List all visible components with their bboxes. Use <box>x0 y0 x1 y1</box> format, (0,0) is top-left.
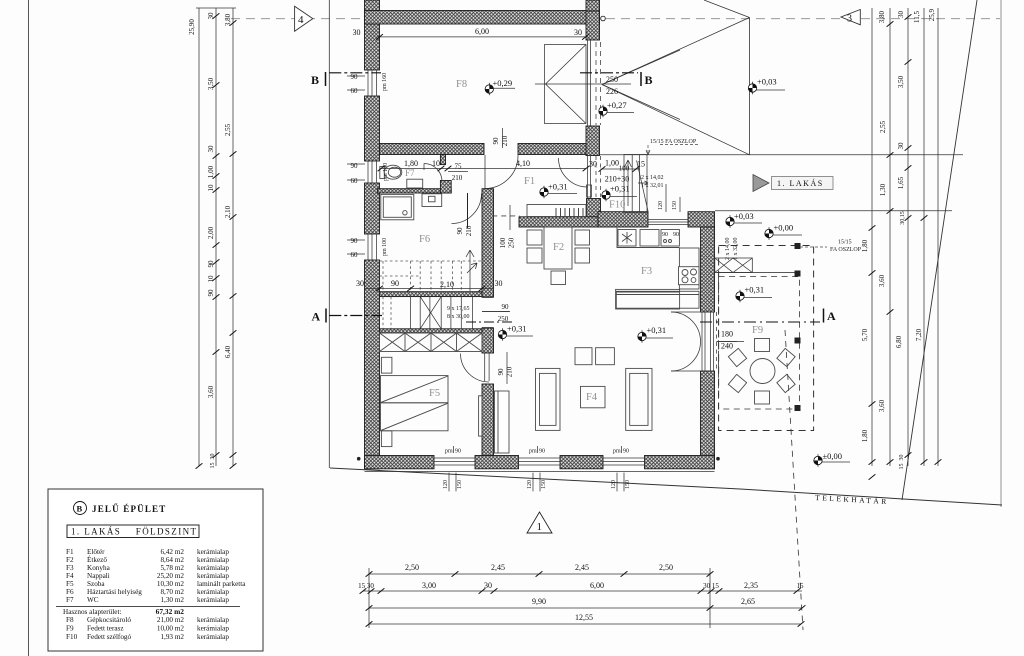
svg-text:kerámialap: kerámialap <box>197 556 229 564</box>
svg-text:15 30: 15 30 <box>899 455 905 470</box>
svg-text:2,10: 2,10 <box>440 280 454 289</box>
svg-text:1,65: 1,65 <box>897 176 905 189</box>
svg-text:+0,31: +0,31 <box>745 285 765 295</box>
svg-text:Hasznos alapterület:: Hasznos alapterület: <box>63 608 121 616</box>
svg-text:10,00 m2: 10,00 m2 <box>157 625 185 633</box>
svg-text:25,90: 25,90 <box>188 19 196 35</box>
svg-text:15 30: 15 30 <box>358 582 374 590</box>
svg-text:+0,31: +0,31 <box>507 324 527 334</box>
svg-text:+0,31: +0,31 <box>647 325 667 335</box>
svg-text:90: 90 <box>456 227 464 235</box>
svg-text:10: 10 <box>432 159 440 168</box>
svg-text:90: 90 <box>497 368 505 376</box>
svg-text:15: 15 <box>637 160 645 169</box>
svg-text:210: 210 <box>465 225 473 236</box>
svg-text:kerámialap: kerámialap <box>197 564 229 572</box>
svg-text:A: A <box>312 310 321 324</box>
svg-text:2 x 14,00: 2 x 14,00 <box>725 238 731 261</box>
svg-text:+0,27: +0,27 <box>607 100 627 110</box>
svg-text:laminált parketta: laminált parketta <box>197 580 246 588</box>
svg-text:3,50: 3,50 <box>897 75 905 88</box>
svg-text:kerámialap: kerámialap <box>197 616 229 624</box>
svg-text:Fedett terasz: Fedett terasz <box>87 625 124 633</box>
svg-text:250: 250 <box>498 315 509 323</box>
svg-text:90: 90 <box>502 303 510 311</box>
svg-text:±0,00: ±0,00 <box>823 451 843 461</box>
svg-text:30: 30 <box>207 12 215 20</box>
svg-text:FA OSZLOP: FA OSZLOP <box>830 247 862 253</box>
svg-text:120: 120 <box>443 480 449 489</box>
svg-text:1,93 m2: 1,93 m2 <box>160 633 184 641</box>
svg-text:3,60: 3,60 <box>207 385 215 398</box>
svg-text:9,90: 9,90 <box>532 597 546 606</box>
svg-text:90: 90 <box>207 289 215 297</box>
svg-text:5,78 m2: 5,78 m2 <box>160 564 184 572</box>
svg-text:1,00: 1,00 <box>605 159 619 168</box>
svg-text:21,00 m2: 21,00 m2 <box>157 616 185 624</box>
svg-text:90: 90 <box>455 449 461 455</box>
svg-text:2 x 14,02: 2 x 14,02 <box>641 175 664 181</box>
svg-text:3: 3 <box>847 14 852 25</box>
svg-text:250: 250 <box>508 237 516 248</box>
svg-text:10: 10 <box>207 184 215 192</box>
svg-text:B: B <box>645 73 653 87</box>
svg-text:250: 250 <box>606 75 618 84</box>
svg-text:kerámialap: kerámialap <box>197 572 229 580</box>
svg-text:10: 10 <box>207 275 215 283</box>
svg-text:2,45: 2,45 <box>575 563 589 572</box>
svg-text:120: 120 <box>658 201 664 210</box>
svg-text:90: 90 <box>673 232 679 238</box>
svg-text:30: 30 <box>353 28 361 37</box>
svg-text:2,65: 2,65 <box>741 597 755 606</box>
svg-text:2,45: 2,45 <box>491 563 505 572</box>
svg-text:1,30 m2: 1,30 m2 <box>160 596 184 604</box>
svg-text:pm: pm <box>613 449 621 455</box>
svg-text:1 x 32,01: 1 x 32,01 <box>641 183 664 189</box>
svg-text:30: 30 <box>484 581 492 590</box>
svg-text:6,40: 6,40 <box>224 345 232 358</box>
svg-text:1. LAKÁS: 1. LAKÁS <box>777 178 824 188</box>
svg-text:90: 90 <box>623 449 629 455</box>
svg-text:F8: F8 <box>456 79 467 90</box>
svg-text:15 30: 15 30 <box>210 454 216 469</box>
svg-text:60: 60 <box>351 251 359 259</box>
svg-text:75: 75 <box>455 163 463 171</box>
svg-text:210: 210 <box>452 174 463 182</box>
svg-text:F4: F4 <box>66 572 74 580</box>
svg-text:JELŰ ÉPÜLET: JELŰ ÉPÜLET <box>92 504 166 514</box>
svg-text:pm: pm <box>529 449 537 455</box>
svg-text:3,80: 3,80 <box>878 11 886 24</box>
svg-text:Szoba: Szoba <box>87 580 105 588</box>
svg-text:226: 226 <box>606 87 618 96</box>
svg-text:F4: F4 <box>586 392 598 403</box>
svg-text:90: 90 <box>351 73 359 81</box>
svg-text:90: 90 <box>492 137 500 145</box>
svg-text:15: 15 <box>797 582 805 590</box>
svg-text:9 x 17,65: 9 x 17,65 <box>447 306 470 312</box>
svg-text:1. LAKÁS FÖLDSZINT: 1. LAKÁS FÖLDSZINT <box>71 527 197 537</box>
svg-text:150: 150 <box>457 480 463 489</box>
svg-text:3,80: 3,80 <box>224 13 232 26</box>
svg-text:B: B <box>77 504 83 514</box>
svg-text:+0,31: +0,31 <box>548 182 568 192</box>
svg-text:F10: F10 <box>66 633 78 641</box>
svg-text:6,00: 6,00 <box>475 27 489 36</box>
svg-text:240: 240 <box>721 342 733 351</box>
svg-text:kerámialap: kerámialap <box>197 548 229 556</box>
svg-text:25,9: 25,9 <box>928 9 936 22</box>
svg-text:30,15: 30,15 <box>900 211 906 225</box>
svg-text:F9: F9 <box>752 325 763 336</box>
svg-text:F7: F7 <box>66 596 74 604</box>
svg-text:B: B <box>311 73 319 87</box>
svg-text:90: 90 <box>662 232 668 238</box>
svg-text:4,10: 4,10 <box>516 159 530 168</box>
svg-text:F6: F6 <box>419 234 430 245</box>
svg-text:kerámialap: kerámialap <box>197 633 229 641</box>
svg-text:5,70: 5,70 <box>861 328 869 341</box>
svg-text:120: 120 <box>611 480 617 489</box>
svg-text:kerámialap: kerámialap <box>197 625 229 633</box>
svg-text:150: 150 <box>672 201 678 210</box>
svg-text:60: 60 <box>351 177 359 185</box>
svg-text:2,50: 2,50 <box>405 563 419 572</box>
svg-text:2,55: 2,55 <box>879 120 887 133</box>
svg-text:1,80: 1,80 <box>404 159 418 168</box>
svg-text:kerámialap: kerámialap <box>197 596 229 604</box>
svg-text:F8: F8 <box>66 616 74 624</box>
svg-text:+0,03: +0,03 <box>734 211 754 221</box>
svg-text:30: 30 <box>574 28 582 37</box>
svg-text:30: 30 <box>495 279 503 288</box>
svg-text:1,00: 1,00 <box>207 165 215 178</box>
svg-text:Fedett szélfogó: Fedett szélfogó <box>87 633 132 641</box>
svg-text:60: 60 <box>351 87 359 95</box>
svg-text:F1: F1 <box>66 548 74 556</box>
svg-text:30: 30 <box>356 279 364 288</box>
svg-text:210+30: 210+30 <box>605 175 630 184</box>
svg-text:3,60: 3,60 <box>878 274 886 287</box>
svg-text:150: 150 <box>625 480 631 489</box>
svg-text:F3: F3 <box>66 564 74 572</box>
svg-text:3,60: 3,60 <box>878 399 886 412</box>
svg-text:2,00: 2,00 <box>207 226 215 239</box>
svg-text:F7: F7 <box>405 168 415 178</box>
svg-text:+0,00: +0,00 <box>774 223 794 233</box>
svg-text:F3: F3 <box>641 266 652 277</box>
svg-text:2,50: 2,50 <box>659 563 673 572</box>
svg-text:F1: F1 <box>524 176 535 187</box>
svg-text:WC: WC <box>87 596 99 604</box>
svg-text:8,70 m2: 8,70 m2 <box>160 588 184 596</box>
svg-text:30 15: 30 15 <box>703 582 719 590</box>
svg-text:150: 150 <box>541 480 547 489</box>
svg-text:7,20: 7,20 <box>915 328 923 341</box>
svg-text:Gépkocsitároló: Gépkocsitároló <box>87 616 131 624</box>
svg-text:1,80: 1,80 <box>861 239 869 252</box>
svg-text:100: 100 <box>499 237 507 248</box>
svg-text:90: 90 <box>539 449 545 455</box>
svg-text:90: 90 <box>351 237 359 245</box>
svg-text:4: 4 <box>298 14 304 26</box>
svg-text:2,55: 2,55 <box>224 123 232 136</box>
svg-text:Előtér: Előtér <box>87 548 105 556</box>
svg-text:11,5: 11,5 <box>913 11 921 23</box>
svg-text:6,42 m2: 6,42 m2 <box>160 548 184 556</box>
svg-text:180: 180 <box>721 330 733 339</box>
svg-text:pm 100: pm 100 <box>382 238 388 256</box>
svg-text:F9: F9 <box>66 625 74 633</box>
svg-text:F5: F5 <box>429 388 440 399</box>
svg-text:2,35: 2,35 <box>744 581 758 590</box>
svg-text:F2: F2 <box>553 242 564 253</box>
svg-text:8 x 30,00: 8 x 30,00 <box>447 314 470 320</box>
svg-text:30: 30 <box>897 142 905 150</box>
svg-text:kerámialap: kerámialap <box>197 588 229 596</box>
svg-text:6,00: 6,00 <box>590 581 604 590</box>
svg-text:+0,31: +0,31 <box>610 184 630 194</box>
svg-text:Háztartási helyiség: Háztartási helyiség <box>87 588 142 596</box>
svg-text:1 x 32,00: 1 x 32,00 <box>733 238 739 261</box>
svg-text:pm: pm <box>445 449 453 455</box>
svg-text:100: 100 <box>619 165 630 173</box>
svg-text:1,80: 1,80 <box>861 429 869 442</box>
svg-text:15/15: 15/15 <box>838 240 852 246</box>
svg-text:Konyha: Konyha <box>87 564 111 572</box>
svg-text:Nappali: Nappali <box>87 572 110 580</box>
svg-text:pm 160: pm 160 <box>382 73 388 91</box>
svg-text:+0,03: +0,03 <box>757 77 777 87</box>
svg-text:F2: F2 <box>66 556 74 564</box>
svg-text:3,50: 3,50 <box>207 77 215 90</box>
svg-text:3,00: 3,00 <box>422 581 436 590</box>
svg-text:1: 1 <box>537 521 543 533</box>
svg-text:67,32 m2: 67,32 m2 <box>156 607 185 616</box>
svg-text:90: 90 <box>207 260 215 268</box>
svg-text:10,30 m2: 10,30 m2 <box>157 580 185 588</box>
svg-text:12,55: 12,55 <box>575 613 593 622</box>
svg-text:30: 30 <box>207 145 215 153</box>
svg-text:6,80: 6,80 <box>895 335 903 348</box>
svg-text:+0,29: +0,29 <box>493 78 513 88</box>
svg-text:2,10: 2,10 <box>224 205 232 218</box>
svg-text:1,30: 1,30 <box>879 183 887 196</box>
svg-text:90: 90 <box>351 162 359 170</box>
svg-text:F6: F6 <box>66 588 74 596</box>
svg-text:8,64 m2: 8,64 m2 <box>160 556 184 564</box>
svg-text:30: 30 <box>897 11 905 19</box>
svg-text:25,20 m2: 25,20 m2 <box>157 572 185 580</box>
svg-text:F5: F5 <box>66 580 74 588</box>
svg-text:90: 90 <box>391 279 399 288</box>
svg-text:F10: F10 <box>609 200 625 211</box>
svg-text:Étkező: Étkező <box>87 554 107 564</box>
svg-text:A: A <box>827 309 836 323</box>
svg-text:15/15 FA OSZLOP: 15/15 FA OSZLOP <box>650 139 697 145</box>
svg-text:30: 30 <box>589 160 597 169</box>
svg-text:120: 120 <box>527 480 533 489</box>
